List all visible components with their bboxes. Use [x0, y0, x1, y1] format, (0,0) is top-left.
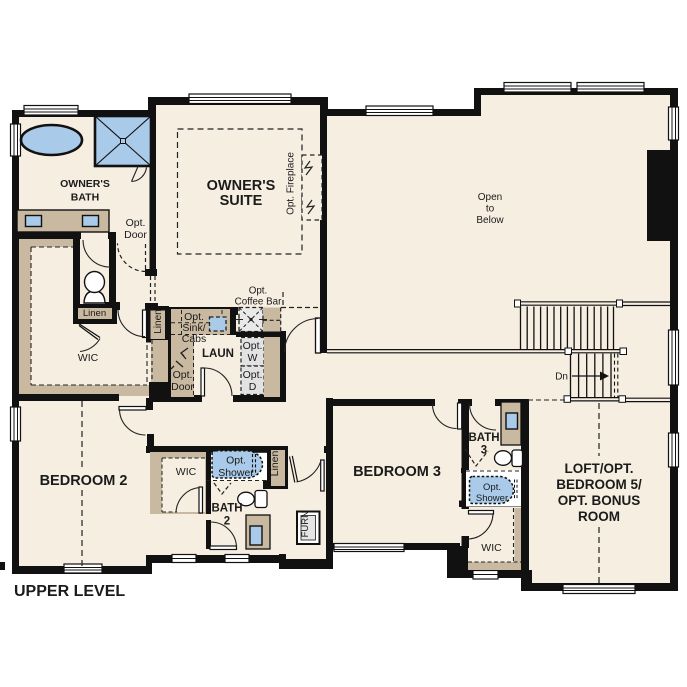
svg-text:Opt.: Opt. — [126, 217, 146, 229]
svg-text:UPPER LEVEL: UPPER LEVEL — [14, 583, 125, 600]
svg-text:Coffee Bar: Coffee Bar — [235, 297, 282, 308]
svg-text:WIC: WIC — [481, 542, 502, 554]
svg-text:BATH: BATH — [211, 503, 242, 515]
svg-text:Below: Below — [476, 215, 504, 226]
svg-text:Linen: Linen — [153, 309, 164, 333]
svg-text:FURN: FURN — [300, 511, 311, 538]
svg-text:ROOM: ROOM — [578, 509, 620, 524]
svg-text:Open: Open — [478, 192, 502, 203]
svg-text:Opt.: Opt. — [243, 369, 263, 381]
svg-text:3: 3 — [481, 445, 487, 457]
svg-text:WIC: WIC — [176, 466, 197, 478]
svg-text:Shower: Shower — [218, 467, 254, 479]
svg-text:SUITE: SUITE — [220, 193, 263, 209]
svg-text:LAUN: LAUN — [202, 348, 234, 360]
svg-text:Linen: Linen — [83, 308, 106, 319]
svg-text:2: 2 — [224, 516, 230, 528]
svg-text:Dn: Dn — [555, 372, 568, 383]
svg-text:Door: Door — [124, 229, 147, 241]
svg-text:Opt.: Opt. — [226, 455, 246, 467]
svg-text:Cabs: Cabs — [182, 333, 207, 345]
svg-text:BEDROOM 2: BEDROOM 2 — [40, 473, 128, 489]
svg-text:OWNER'S: OWNER'S — [60, 178, 110, 190]
svg-text:BEDROOM 5/: BEDROOM 5/ — [556, 477, 642, 492]
svg-text:D: D — [249, 381, 257, 393]
svg-text:Opt.: Opt. — [483, 482, 501, 493]
svg-text:Opt.: Opt. — [249, 286, 268, 297]
svg-text:OWNER'S: OWNER'S — [207, 178, 276, 194]
svg-text:to: to — [486, 204, 495, 215]
svg-text:WIC: WIC — [78, 352, 99, 364]
svg-text:Opt. Fireplace: Opt. Fireplace — [286, 152, 297, 215]
svg-text:BATH: BATH — [468, 432, 499, 444]
svg-text:Door: Door — [171, 381, 194, 393]
svg-text:Opt.: Opt. — [173, 369, 193, 381]
svg-text:W: W — [248, 352, 258, 364]
svg-text:BATH: BATH — [71, 192, 99, 204]
svg-text:Linen: Linen — [269, 451, 281, 477]
svg-text:Shower: Shower — [476, 493, 508, 504]
svg-text:LOFT/OPT.: LOFT/OPT. — [565, 461, 634, 476]
svg-text:BEDROOM 3: BEDROOM 3 — [353, 464, 441, 480]
svg-text:Opt.: Opt. — [243, 340, 263, 352]
svg-text:OPT. BONUS: OPT. BONUS — [558, 493, 641, 508]
